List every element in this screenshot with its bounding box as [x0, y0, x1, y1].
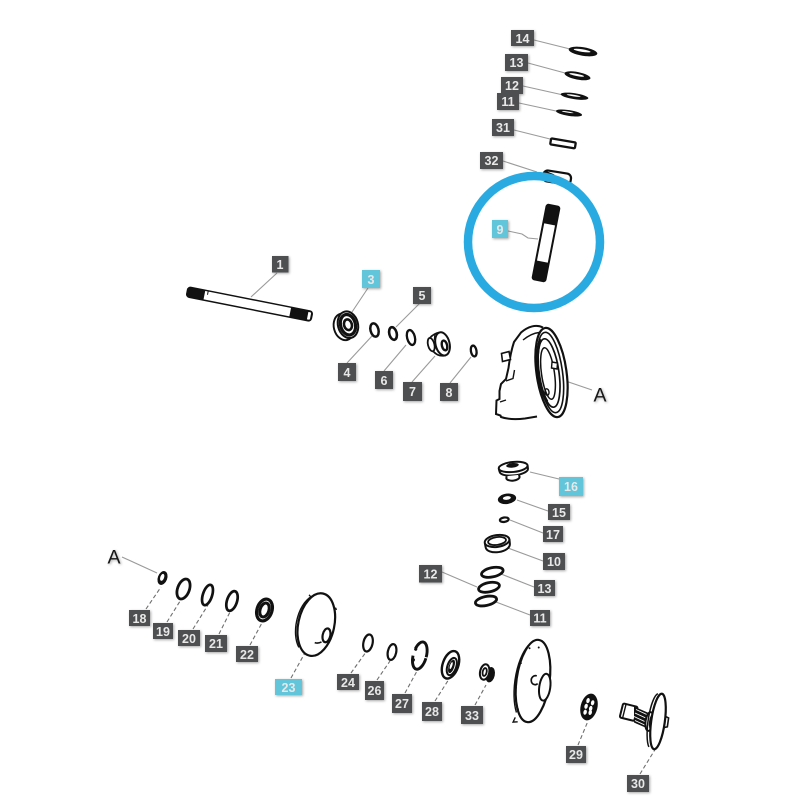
svg-text:1: 1 [277, 258, 284, 272]
svg-text:14: 14 [516, 32, 530, 46]
svg-text:28: 28 [425, 705, 439, 719]
svg-text:6: 6 [381, 374, 388, 388]
svg-text:13: 13 [510, 56, 524, 70]
svg-text:9: 9 [497, 223, 504, 237]
svg-text:16: 16 [564, 480, 578, 494]
svg-text:33: 33 [465, 709, 479, 723]
svg-text:3: 3 [368, 273, 375, 287]
svg-text:23: 23 [282, 681, 296, 695]
svg-text:21: 21 [209, 637, 223, 651]
svg-text:32: 32 [485, 154, 499, 168]
svg-text:18: 18 [133, 612, 147, 626]
svg-text:4: 4 [344, 366, 351, 380]
svg-text:5: 5 [419, 289, 426, 303]
svg-text:12: 12 [424, 568, 438, 582]
svg-text:22: 22 [240, 648, 254, 662]
svg-text:26: 26 [368, 684, 382, 698]
svg-text:27: 27 [395, 697, 409, 711]
svg-text:A: A [108, 547, 121, 569]
svg-text:24: 24 [341, 676, 355, 690]
svg-text:7: 7 [409, 385, 416, 399]
svg-text:11: 11 [501, 95, 514, 109]
svg-text:10: 10 [547, 555, 561, 569]
svg-text:15: 15 [552, 506, 566, 520]
svg-text:19: 19 [156, 625, 170, 639]
svg-text:11: 11 [533, 612, 546, 626]
svg-text:29: 29 [569, 748, 583, 762]
svg-text:8: 8 [446, 386, 453, 400]
svg-text:A: A [594, 385, 607, 407]
svg-text:17: 17 [546, 528, 560, 542]
svg-text:31: 31 [496, 121, 510, 135]
svg-text:30: 30 [631, 777, 645, 791]
svg-text:20: 20 [182, 632, 196, 646]
svg-text:12: 12 [505, 79, 519, 93]
svg-text:13: 13 [538, 582, 552, 596]
